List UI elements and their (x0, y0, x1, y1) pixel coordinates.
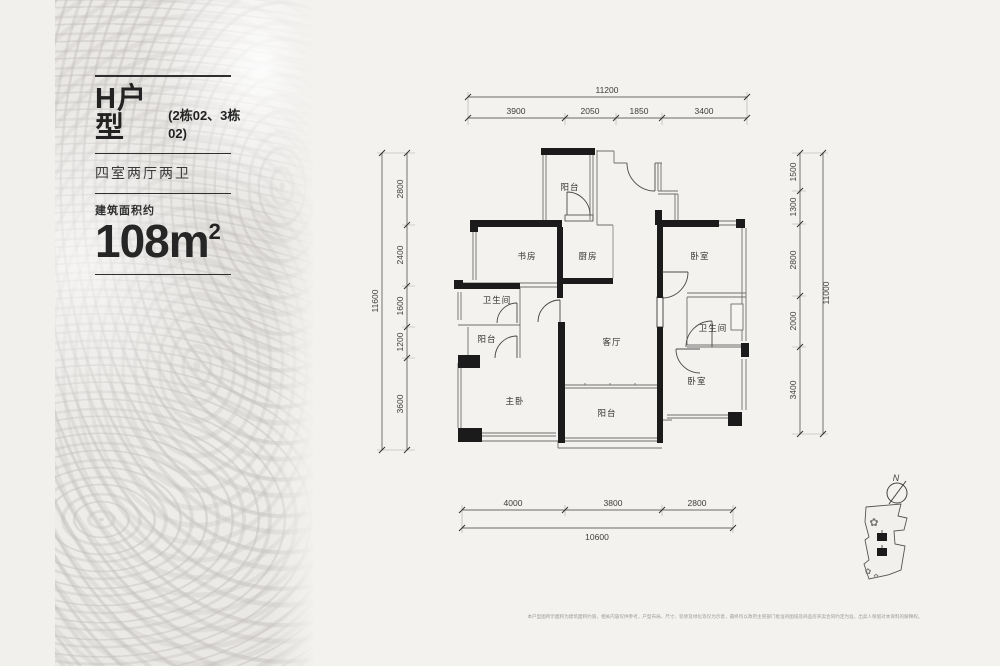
dim-labels-bottom: 4000 3800 2800 10600 (504, 498, 707, 542)
tree-icon: ✿ (873, 573, 878, 580)
room-label-living: 客厅 (602, 337, 621, 347)
divider (95, 153, 231, 154)
room-label-bedroom-ne: 卧室 (690, 251, 709, 261)
dim-top-seg-3: 1850 (630, 106, 649, 116)
dim-left-seg-2: 2400 (395, 245, 405, 264)
dim-labels-top: 11200 3900 2050 1850 3400 (507, 85, 714, 116)
dim-left-seg-4: 1200 (395, 332, 405, 351)
dim-top-seg-2: 2050 (581, 106, 600, 116)
dim-left-seg-1: 2800 (395, 179, 405, 198)
dim-right-total: 11000 (821, 281, 831, 304)
dim-bottom-seg-2: 3800 (604, 498, 623, 508)
room-label-balcony-left: 阳台 (477, 334, 496, 344)
dim-right-seg-1: 1500 (788, 162, 798, 181)
dim-extension-lines (377, 92, 828, 533)
room-label-bedroom-se: 卧室 (687, 376, 706, 386)
dim-bottom-seg-1: 4000 (504, 498, 523, 508)
floorplan-drawing: 11200 3900 2050 1850 3400 11600 2800 240… (360, 70, 980, 630)
dim-tick-marks (379, 94, 826, 531)
dim-bottom-total: 10600 (585, 532, 609, 542)
dim-right-seg-4: 2000 (788, 311, 798, 330)
tree-icon: ✿ (865, 567, 872, 576)
dim-labels-left: 11600 2800 2400 1600 1200 3600 (370, 179, 405, 413)
tree-icon: ✿ (869, 517, 878, 529)
room-labels: 阳台 书房 厨房 卧室 卫生间 阳台 客厅 卫生间 主卧 卧室 阳台 (477, 182, 727, 418)
left-edge-strip (0, 0, 55, 666)
unit-title-note: (2栋02、3栋02) (168, 107, 245, 143)
dim-lines (382, 97, 823, 528)
dim-right-seg-2: 1300 (788, 197, 798, 216)
unit-info-panel: H户型 (2栋02、3栋02) 四室两厅两卫 建筑面积约 108m2 (95, 75, 245, 275)
area-superscript: 2 (209, 219, 221, 244)
unit-title: H户型 (95, 85, 164, 143)
dim-bottom-seg-3: 2800 (688, 498, 707, 508)
dim-top-seg-4: 3400 (695, 106, 714, 116)
room-label-study: 书房 (517, 251, 536, 261)
dim-left-seg-5: 3600 (395, 394, 405, 413)
room-label-balcony-bottom: 阳台 (597, 408, 616, 418)
area-value: 108m (95, 215, 209, 267)
dim-labels-right: 11000 1500 1300 2800 2000 3400 (788, 162, 831, 399)
dim-right-seg-5: 3400 (788, 380, 798, 399)
room-label-bath-right: 卫生间 (699, 323, 728, 333)
north-label: N (893, 473, 900, 483)
area-row: 108m2 (95, 218, 245, 264)
dim-left-seg-3: 1600 (395, 296, 405, 315)
divider (95, 274, 231, 275)
dim-left-total: 11600 (370, 289, 380, 312)
dim-right-seg-3: 2800 (788, 250, 798, 269)
dim-top-seg-1: 3900 (507, 106, 526, 116)
disclaimer-text: 本户型图所示面积为建筑面积约值，相关内容仅供参考，户型布局、尺寸、装修及绿化等仅… (527, 613, 922, 620)
dim-top-total: 11200 (595, 85, 618, 95)
room-label-master: 主卧 (505, 396, 524, 406)
marble-fade (268, 0, 316, 666)
room-label-balcony-top: 阳台 (560, 182, 579, 192)
room-label-bath-left: 卫生间 (483, 295, 512, 305)
unit-layout-type: 四室两厅两卫 (95, 163, 245, 183)
divider (95, 193, 231, 194)
room-label-kitchen: 厨房 (578, 251, 597, 261)
compass-icon: N (887, 473, 907, 504)
divider (95, 75, 231, 77)
site-key-plan: ✿ ✿ ✿ (864, 504, 907, 580)
